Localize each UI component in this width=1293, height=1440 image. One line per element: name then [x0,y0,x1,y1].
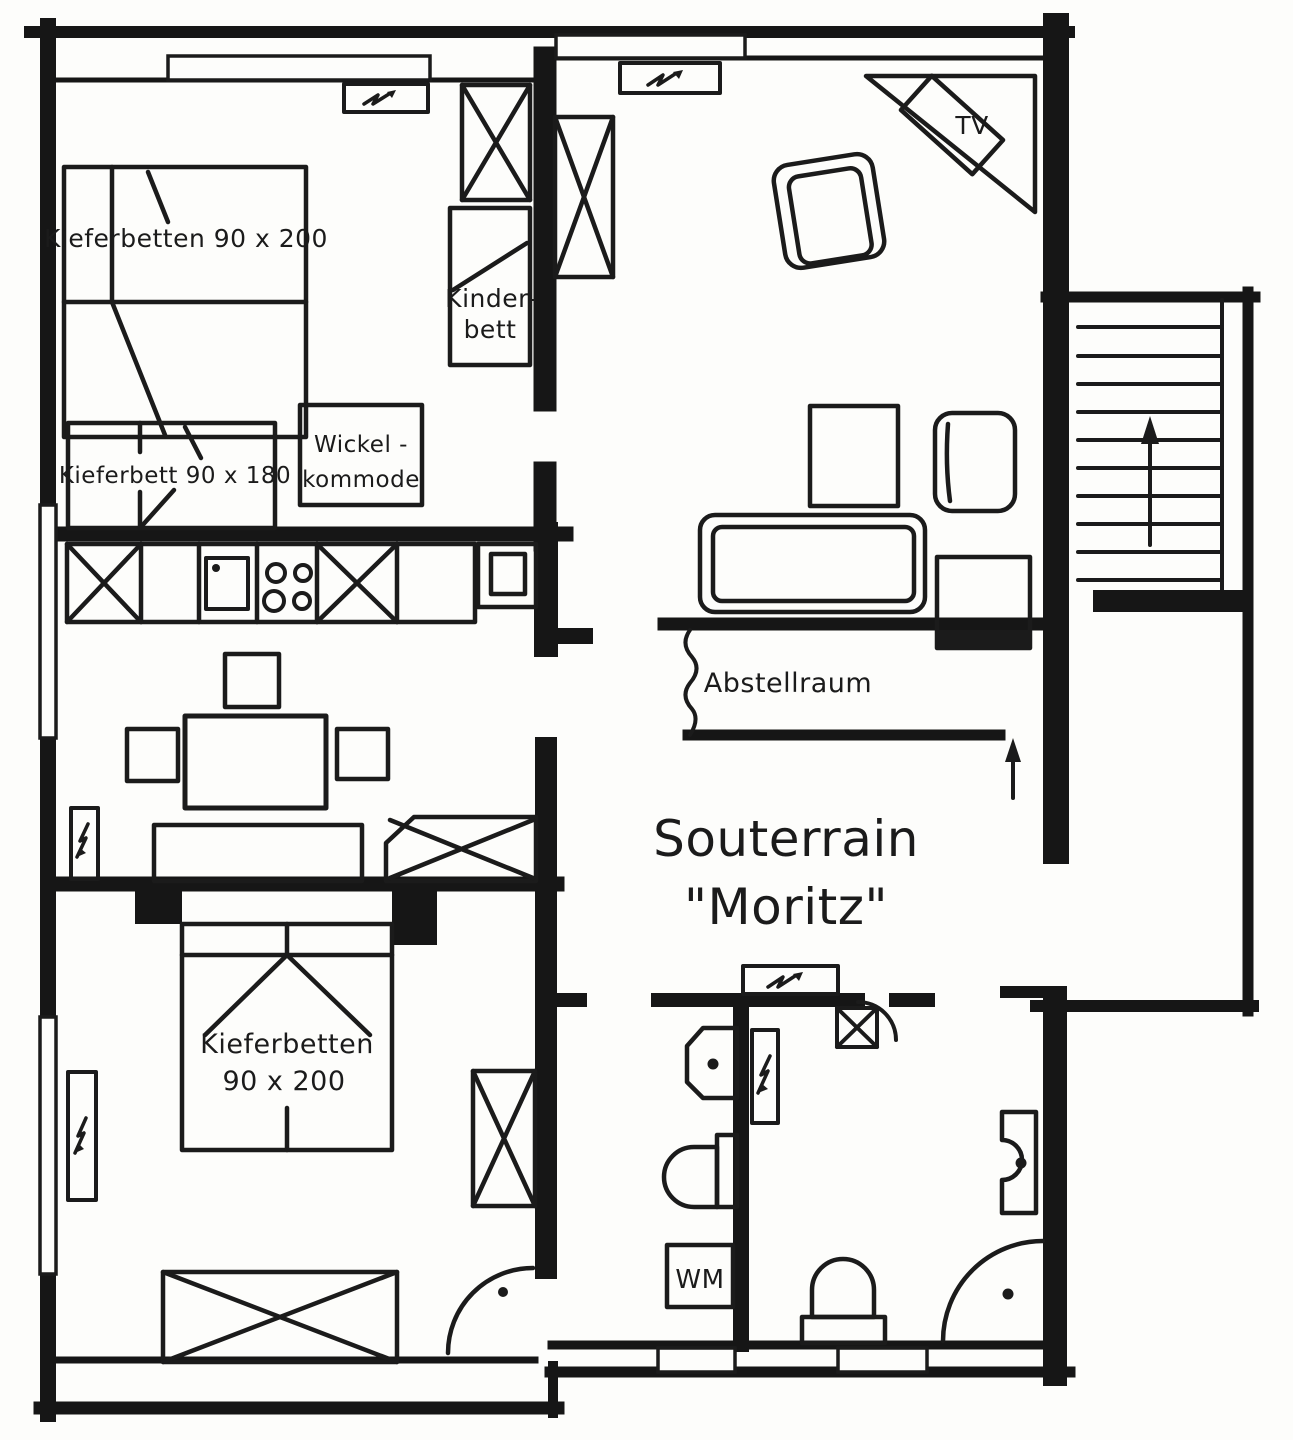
bedroom-door [448,1268,533,1353]
shower-icon [943,1241,1043,1341]
plan-title-line2: "Moritz" [684,878,888,936]
dining-bench [154,825,362,881]
radiator-bath-icon [743,966,838,994]
stove-icon [264,564,311,611]
electric-bedroom-icon [68,1072,96,1200]
window-bottom-washroom [658,1348,735,1372]
electric-dining-icon [71,808,98,879]
washroom: WM [664,1028,778,1307]
bedroom-bottom: Kieferbetten 90 x 200 [68,924,535,1362]
side-table [810,406,898,506]
changing-table-label-line1: Wickel - [314,432,408,458]
single-bed-label: Kieferbett 90 x 180 [59,463,291,489]
tv-corner-unit [866,76,1035,212]
kitchen [67,544,536,622]
washing-machine-label: WM [675,1265,724,1295]
radiator-living-icon [620,63,720,93]
kitchen-end-unit [478,544,536,607]
wardrobe-living-icon [555,117,613,277]
dining-chair-left [127,729,178,781]
window-bedroom-top [168,56,430,80]
double-bed-label: Kieferbetten 90 x 200 [44,224,328,253]
bedroom-top: Kieferbetten 90 x 200 Kinder- bett Kiefe… [44,84,537,528]
window-left-kitchen [40,505,56,738]
shower-room [743,966,1043,1343]
vent-box-icon [837,1008,877,1047]
wall-pillar-right [392,884,437,945]
dining-area [71,654,536,881]
storage-label: Abstellraum [704,668,872,699]
dresser-icon [163,1272,397,1362]
crib-label-line1: Kinder- [445,284,537,313]
crib-label-line2: bett [464,315,517,344]
kitchen-sink-icon [206,558,248,609]
plan-title-line1: Souterrain [653,810,919,868]
bed-bottom-label-line2: 90 x 200 [222,1066,345,1097]
changing-table-label-line2: kommode [302,467,420,493]
dining-chair-right [337,729,388,779]
radiator-bedroom-top-icon [344,84,428,112]
armchair-right [935,413,1015,511]
bed-bottom-label-line1: Kieferbetten [200,1029,374,1060]
washroom-toilet-icon [664,1135,737,1207]
sofa [700,515,925,612]
wardrobe-bedroom-top-icon [462,85,530,200]
shower-sink-icon [1002,1112,1036,1213]
storage-chest-icon [386,817,536,881]
armchair-tilted [771,152,886,270]
tv-label: TV [954,111,988,140]
storage-door-arrow-icon [1005,738,1021,798]
wardrobe-bedroom-bottom-icon [473,1071,535,1206]
shower-toilet-icon [802,1259,885,1343]
storage-room: Abstellraum [685,630,1021,798]
wall-pillar-left [135,884,182,924]
dining-chair-top [225,654,279,707]
floor-plan-drawing: Kieferbetten 90 x 200 Kinder- bett Kiefe… [0,0,1293,1440]
dining-table [185,716,326,808]
living-room: TV [555,63,1035,648]
staircase [1078,300,1248,601]
window-bottom-shower [838,1348,927,1372]
window-living-top [556,35,745,58]
floor-plan-page: Kieferbetten 90 x 200 Kinder- bett Kiefe… [0,0,1293,1440]
washroom-sink-icon [687,1028,737,1098]
electric-washroom-icon [752,1030,778,1123]
chimney-block [937,557,1030,648]
window-left-bedroom [40,1017,56,1274]
double-bed [64,167,306,437]
storage-break-line [685,630,696,735]
